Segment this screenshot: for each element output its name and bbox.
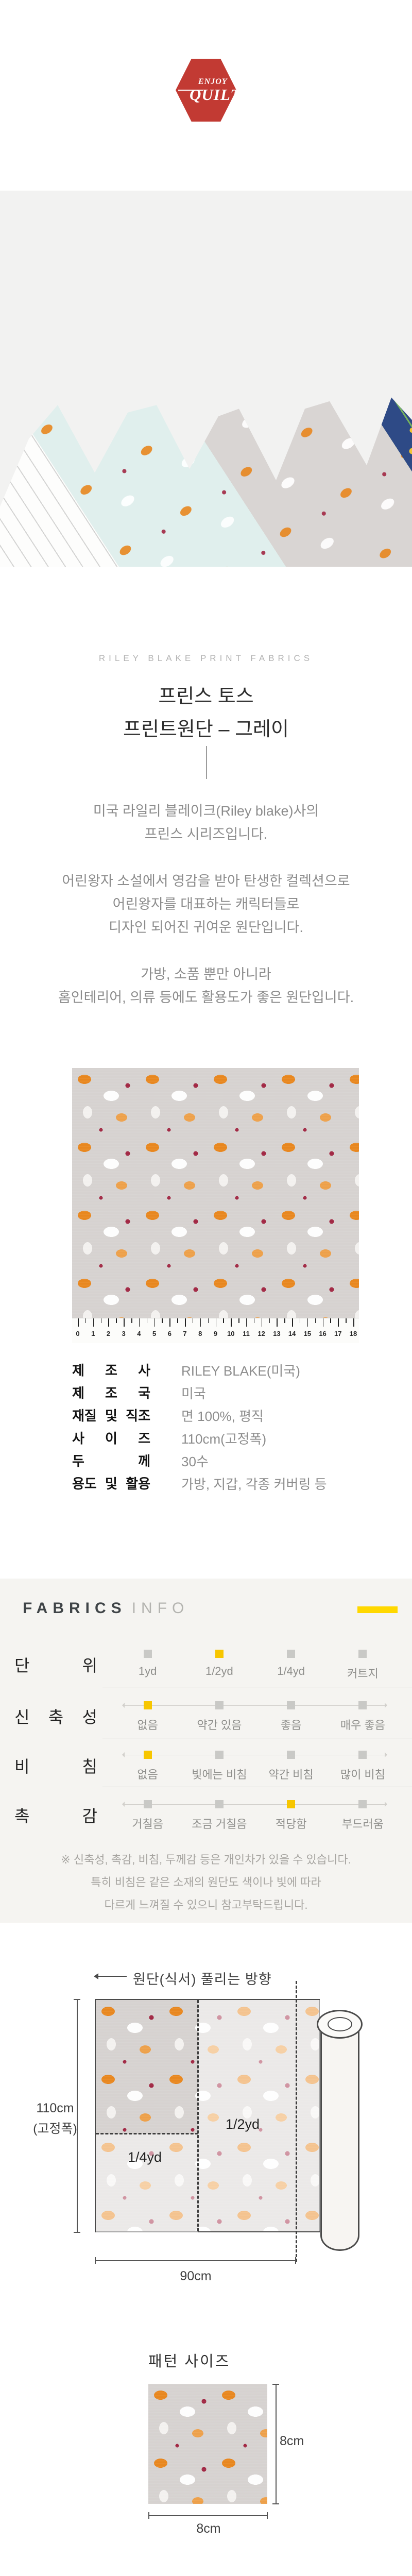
ruler-number: 9 [210, 1330, 222, 1337]
unit-option: 1/4yd [255, 1641, 327, 1681]
description-paragraph-3: 가방, 소품 뿐만 아니라 홈인테리어, 의류 등에도 활용도가 좋은 원단입니… [0, 963, 412, 1009]
row-divider [102, 1738, 412, 1738]
fabric-info-row-unit: 단 위 1yd 1/2yd 1/4yd 커트지 [0, 1641, 412, 1689]
sheer-option: 많이 비침 [327, 1742, 399, 1782]
option-marker [215, 1800, 224, 1808]
ruler-number: 10 [225, 1330, 237, 1337]
ruler-number: 12 [255, 1330, 268, 1337]
option-marker [215, 1701, 224, 1709]
option-marker [358, 1800, 367, 1808]
unroll-direction-label: 원단(식서) 풀리는 방향 [133, 1968, 272, 1988]
option-marker [215, 1650, 224, 1658]
pattern-height-line [276, 2384, 277, 2504]
option-marker [287, 1800, 295, 1808]
ruler: 0123456789101112131415161718 [72, 1318, 359, 1343]
ruler-number: 0 [72, 1330, 84, 1337]
product-description: 미국 라일리 블레이크(Riley blake)사의 프린스 시리즈입니다. 어… [0, 800, 412, 1033]
sheer-option: 없음 [112, 1742, 183, 1782]
roll-edge-cut-line [296, 1981, 297, 2262]
half-yard-cut-line [197, 2000, 199, 2231]
spec-row-material: 재질 및 직조 면 100%, 평직 [72, 1405, 340, 1428]
fabric-stack-silhouette [0, 191, 412, 567]
sheer-option: 빛에는 비침 [183, 1742, 255, 1782]
fabric-roll-core [328, 2017, 352, 2031]
pattern-width-label: 8cm [183, 2521, 234, 2536]
measure-cap [272, 2384, 279, 2385]
row-divider [102, 1787, 412, 1787]
page-title-line1: 프린스 토스 [0, 680, 412, 708]
diagram-fabric-sheet [95, 1999, 320, 2232]
option-marker [287, 1751, 295, 1759]
description-paragraph-2: 어린왕자 소설에서 영감을 받아 탄생한 컬렉션으로 어린왕자를 대표하는 캐릭… [0, 870, 412, 939]
ruler-number: 8 [194, 1330, 207, 1337]
measure-cap [95, 2257, 96, 2264]
half-yard-label: 1/2yd [226, 2116, 260, 2132]
option-marker [287, 1701, 295, 1709]
unroll-direction-arrow-icon [95, 1976, 127, 1977]
spec-row-usage: 용도 및 활용 가방, 지갑, 각종 커버링 등 [72, 1473, 340, 1496]
sheer-option: 약간 비침 [255, 1742, 327, 1782]
unit-option: 1/2yd [183, 1641, 255, 1681]
fabric-roll-body [320, 2023, 359, 2251]
ruler-number: 7 [179, 1330, 191, 1337]
hero-fabric-stack-photo [0, 191, 412, 567]
spec-row-country: 제 조 국 미국 [72, 1383, 340, 1405]
quarter-yard-cut-line [96, 2133, 198, 2134]
ruler-number: 4 [133, 1330, 145, 1337]
ruler-number: 16 [317, 1330, 329, 1337]
sheet-light-area [96, 2134, 198, 2233]
ruler-number: 5 [148, 1330, 161, 1337]
brand-logo-hexagon: ENJOY QUILT [176, 59, 236, 122]
ruler-number: 14 [286, 1330, 298, 1337]
stretch-option: 매우 좋음 [327, 1693, 399, 1733]
unit-option: 커트지 [327, 1641, 399, 1681]
stretch-option: 약간 있음 [183, 1693, 255, 1733]
fabrics-info-title: FABRICSINFO [23, 1600, 189, 1617]
texture-option: 부드러움 [327, 1792, 399, 1832]
fabric-sample-photo: 0123456789101112131415161718 [72, 1068, 359, 1343]
pattern-size-swatch [148, 2384, 267, 2504]
spec-row-size: 사 이 즈 110cm(고정폭) [72, 1428, 340, 1451]
page-title-line2: 프린트원단 – 그레이 [0, 713, 412, 741]
option-marker [358, 1751, 367, 1759]
ruler-number: 3 [117, 1330, 130, 1337]
ruler-number: 17 [332, 1330, 344, 1337]
unit-option: 1yd [112, 1641, 183, 1681]
measure-cap [267, 2512, 268, 2519]
texture-option: 조금 거칠음 [183, 1792, 255, 1832]
title-divider [206, 746, 207, 779]
fabric-length-label: 90cm [170, 2269, 221, 2284]
ruler-number: 1 [87, 1330, 99, 1337]
accent-bar [357, 1606, 398, 1613]
stretch-option: 없음 [112, 1693, 183, 1733]
fabric-width-label: 110cm (고정폭) [29, 2098, 81, 2139]
option-marker [358, 1701, 367, 1709]
series-eyebrow: RILEY BLAKE PRINT FABRICS [0, 653, 412, 664]
product-detail-page: ENJOY QUILT RILEY BLAKE PRINT FABRICS 프린… [0, 0, 412, 2576]
measure-cap [74, 1999, 80, 2000]
stretch-option: 좋음 [255, 1693, 327, 1733]
description-paragraph-1: 미국 라일리 블레이크(Riley blake)사의 프린스 시리즈입니다. [0, 800, 412, 846]
option-marker [358, 1650, 367, 1658]
fabric-info-row-sheerness: 비 침 없음 빛에는 비침 약간 비침 많이 비침 [0, 1742, 412, 1790]
pattern-height-label: 8cm [280, 2434, 304, 2449]
row-divider [102, 1687, 412, 1687]
measure-cap [148, 2512, 149, 2519]
texture-option: 적당함 [255, 1792, 327, 1832]
option-marker [144, 1800, 152, 1808]
measure-cap [272, 2503, 279, 2504]
option-marker [287, 1650, 295, 1658]
ruler-number: 15 [301, 1330, 314, 1337]
fabric-info-row-stretch: 신 축 성 없음 약간 있음 좋음 매우 좋음 [0, 1693, 412, 1740]
ruler-number: 13 [270, 1330, 283, 1337]
measure-cap [295, 2257, 296, 2264]
sheet-light-area [198, 2000, 321, 2231]
logo-text-bottom: QUILT [190, 86, 241, 104]
fabric-info-row-texture: 촉 감 거칠음 조금 거칠음 적당함 부드러움 [0, 1792, 412, 1839]
texture-option: 거칠음 [112, 1792, 183, 1832]
fabric-info-notes: ※ 신축성, 촉감, 비침, 두께감 등은 개인차가 있을 수 있습니다. 특히… [0, 1849, 412, 1917]
measure-cap [74, 2232, 80, 2233]
option-marker [144, 1650, 152, 1658]
ruler-number: 18 [347, 1330, 359, 1337]
option-marker [144, 1701, 152, 1709]
pattern-size-title: 패턴 사이즈 [148, 2349, 230, 2371]
quarter-yard-label: 1/4yd [128, 2149, 162, 2165]
ruler-number: 2 [102, 1330, 114, 1337]
spec-row-manufacturer: 제 조 사 RILEY BLAKE(미국) [72, 1360, 340, 1383]
spec-row-thickness: 두 께 30수 [72, 1451, 340, 1473]
ruler-number: 6 [163, 1330, 176, 1337]
ruler-number: 11 [240, 1330, 252, 1337]
pattern-width-line [148, 2515, 267, 2516]
option-marker [144, 1751, 152, 1759]
option-marker [215, 1751, 224, 1759]
length-measure-line [95, 2260, 296, 2261]
fabric-swatch [72, 1068, 359, 1318]
